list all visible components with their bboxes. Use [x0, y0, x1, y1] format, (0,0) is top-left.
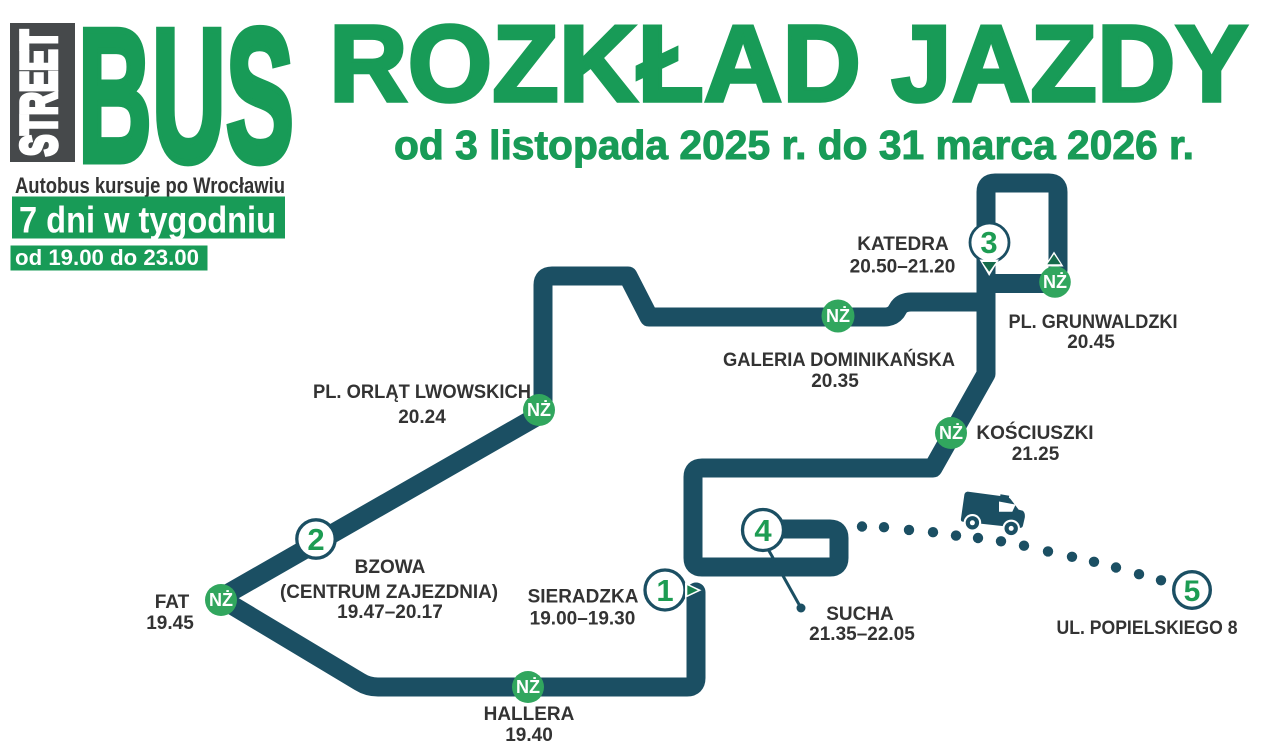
svg-text:Autobus kursuje po Wrocławiu: Autobus kursuje po Wrocławiu	[15, 173, 285, 198]
svg-text:KATEDRA: KATEDRA	[857, 234, 949, 255]
svg-text:NŻ: NŻ	[516, 677, 540, 697]
svg-text:19.40: 19.40	[505, 725, 553, 746]
svg-text:20.45: 20.45	[1067, 332, 1115, 353]
svg-text:BUS: BUS	[78, 0, 294, 202]
svg-text:SIERADZKA: SIERADZKA	[528, 587, 639, 608]
svg-text:1: 1	[656, 573, 673, 608]
svg-text:UL. POPIELSKIEGO 8: UL. POPIELSKIEGO 8	[1057, 618, 1238, 639]
svg-text:21.25: 21.25	[1012, 444, 1060, 465]
svg-text:19.00–19.30: 19.00–19.30	[530, 609, 636, 630]
svg-text:SUCHA: SUCHA	[826, 604, 894, 625]
svg-text:3: 3	[980, 225, 997, 260]
svg-text:od 19.00 do 23.00: od 19.00 do 23.00	[15, 245, 199, 270]
svg-text:NŻ: NŻ	[209, 590, 233, 610]
svg-text:5: 5	[1184, 575, 1201, 608]
svg-text:KOŚCIUSZKI: KOŚCIUSZKI	[976, 422, 1093, 444]
svg-text:20.24: 20.24	[398, 407, 446, 428]
svg-text:BZOWA: BZOWA	[355, 557, 426, 578]
svg-text:FAT: FAT	[155, 592, 190, 613]
svg-text:7 dni w tygodniu: 7 dni w tygodniu	[19, 200, 276, 241]
svg-text:PL. ORLĄT LWOWSKICH: PL. ORLĄT LWOWSKICH	[313, 382, 531, 403]
svg-text:(CENTRUM ZAJEZDNIA): (CENTRUM ZAJEZDNIA)	[280, 582, 498, 603]
svg-text:4: 4	[754, 513, 772, 548]
svg-text:19.45: 19.45	[146, 613, 194, 634]
svg-text:od 3 listopada 2025 r. do 31 m: od 3 listopada 2025 r. do 31 marca 2026 …	[394, 122, 1194, 168]
svg-text:STREET: STREET	[11, 30, 67, 156]
svg-text:NŻ: NŻ	[1043, 272, 1067, 292]
svg-text:NŻ: NŻ	[826, 306, 850, 326]
svg-text:PL. GRUNWALDZKI: PL. GRUNWALDZKI	[1009, 312, 1178, 333]
svg-text:NŻ: NŻ	[939, 423, 963, 443]
svg-text:20.35: 20.35	[811, 371, 859, 392]
svg-text:19.47–20.17: 19.47–20.17	[337, 602, 443, 623]
svg-text:21.35–22.05: 21.35–22.05	[809, 624, 915, 645]
svg-text:ROZKŁAD JAZDY: ROZKŁAD JAZDY	[329, 3, 1248, 125]
svg-text:GALERIA DOMINIKAŃSKA: GALERIA DOMINIKAŃSKA	[723, 349, 955, 371]
svg-text:2: 2	[307, 522, 324, 557]
svg-text:NŻ: NŻ	[527, 400, 551, 420]
svg-text:20.50–21.20: 20.50–21.20	[850, 257, 956, 278]
svg-text:HALLERA: HALLERA	[484, 704, 575, 725]
